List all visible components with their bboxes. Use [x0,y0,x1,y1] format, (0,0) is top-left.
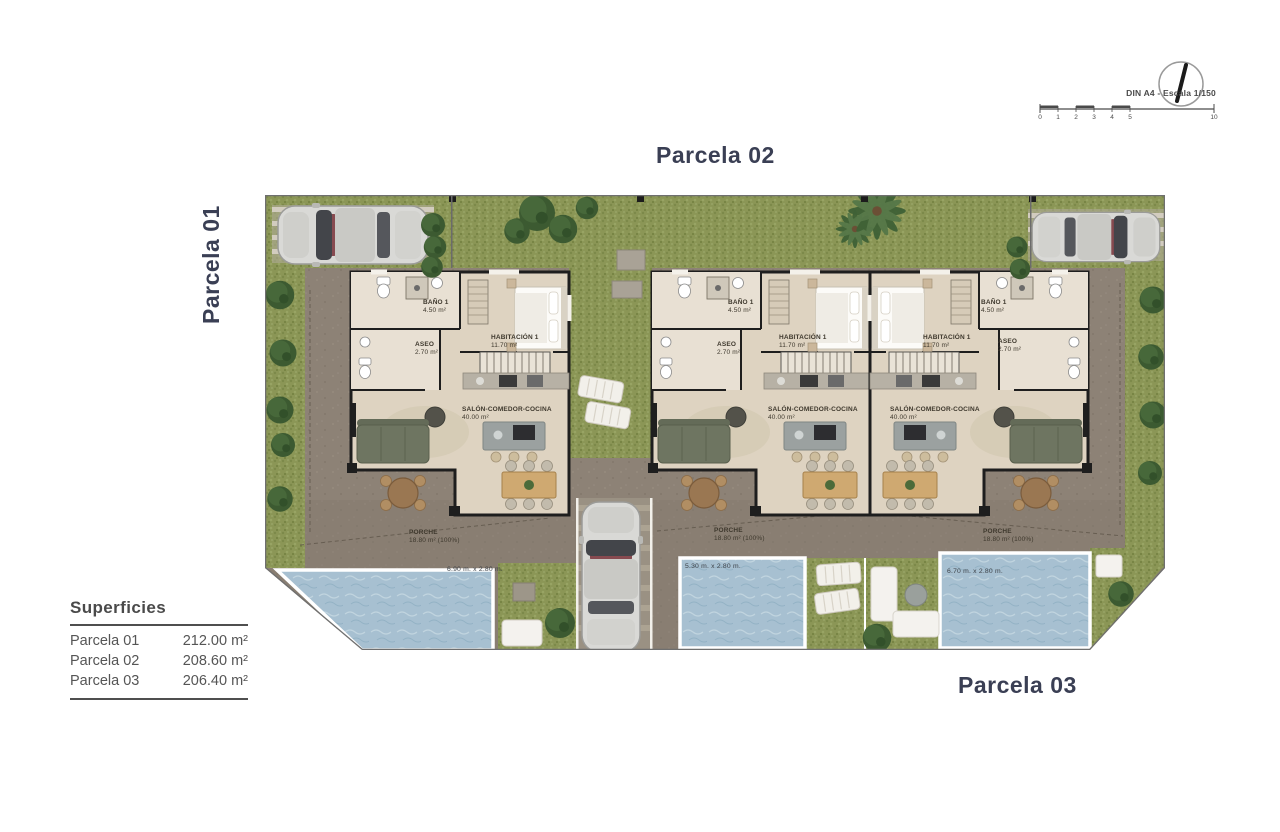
legend-divider-top [70,624,248,626]
legend-label: Parcela 01 [70,633,139,649]
scale-tick-1: 1 [1056,114,1060,121]
room-label-porche-villa-3: PORCHE 18.80 m² (100%) [983,528,1034,544]
legend-title: Superficies [70,598,248,618]
room-label-bano-villa-3: BAÑO 1 4.50 m² [981,299,1006,315]
room-label-aseo-villa-2: ASEO 2.70 m² [717,341,740,357]
room-label-salon-villa-3: SALÓN-COMEDOR-COCINA 40.00 m² [890,406,980,422]
title-parcela-02: Parcela 02 [656,142,775,169]
legend-row-parcela-01: Parcela 01 212.00 m² [70,633,248,649]
scale-tick-4: 4 [1110,114,1114,121]
legend-label: Parcela 03 [70,673,139,689]
site-plan-drawing [265,195,1165,655]
title-parcela-03: Parcela 03 [958,672,1077,699]
legend-label: Parcela 02 [70,653,139,669]
villa-parcela-01 [347,270,572,517]
room-label-porche-villa-2: PORCHE 18.80 m² (100%) [714,527,765,543]
pool-dimension-villa-1: 6.90 m. x 2.80 m. [447,566,503,573]
room-label-habitacion-villa-3: HABITACIÓN 1 11.70 m² [923,334,971,350]
site-plan: BAÑO 1 4.50 m² ASEO 2.70 m² HABITACIÓN 1… [265,195,1165,655]
scale-tick-3: 3 [1092,114,1096,121]
room-label-bano-villa-1: BAÑO 1 4.50 m² [423,299,448,315]
car-driveway [579,502,643,652]
title-parcela-01: Parcela 01 [198,190,225,324]
scale-tick-10: 10 [1210,114,1217,121]
room-label-salon-villa-1: SALÓN-COMEDOR-COCINA 40.00 m² [462,406,552,422]
villa-parcela-03 [868,270,1093,517]
room-label-salon-villa-2: SALÓN-COMEDOR-COCINA 40.00 m² [768,406,858,422]
legend-value: 212.00 m² [183,633,248,649]
pool-dimension-villa-2: 5.30 m. x 2.80 m. [685,563,741,570]
legend-value: 208.60 m² [183,653,248,669]
scale-tick-5: 5 [1128,114,1132,121]
pool-parcela-01 [277,570,493,650]
pool-parcela-02 [680,558,805,648]
car-parcela-01 [278,203,428,267]
legend-row-parcela-02: Parcela 02 208.60 m² [70,653,248,669]
room-label-bano-villa-2: BAÑO 1 4.50 m² [728,299,753,315]
villa-parcela-02 [648,270,873,517]
scale-tick-0: 0 [1038,114,1042,121]
room-label-habitacion-villa-1: HABITACIÓN 1 11.70 m² [491,334,539,350]
legend-row-parcela-03: Parcela 03 206.40 m² [70,673,248,689]
car-parcela-03 [1032,210,1160,264]
surface-legend: Superficies Parcela 01 212.00 m² Parcela… [70,598,248,707]
room-label-habitacion-villa-2: HABITACIÓN 1 11.70 m² [779,334,827,350]
pool-dimension-villa-3: 6.70 m. x 2.80 m. [947,568,1003,575]
legend-value: 206.40 m² [183,673,248,689]
room-label-aseo-villa-3: ASEO 2.70 m² [998,338,1021,354]
scale-bar-graphic [1030,101,1220,125]
scale-tick-2: 2 [1074,114,1078,121]
legend-divider-bottom [70,698,248,700]
room-label-aseo-villa-1: ASEO 2.70 m² [415,341,438,357]
room-label-porche-villa-1: PORCHE 18.80 m² (100%) [409,529,460,545]
scale-caption: DIN A4 - Escala 1/150 [1126,88,1216,98]
